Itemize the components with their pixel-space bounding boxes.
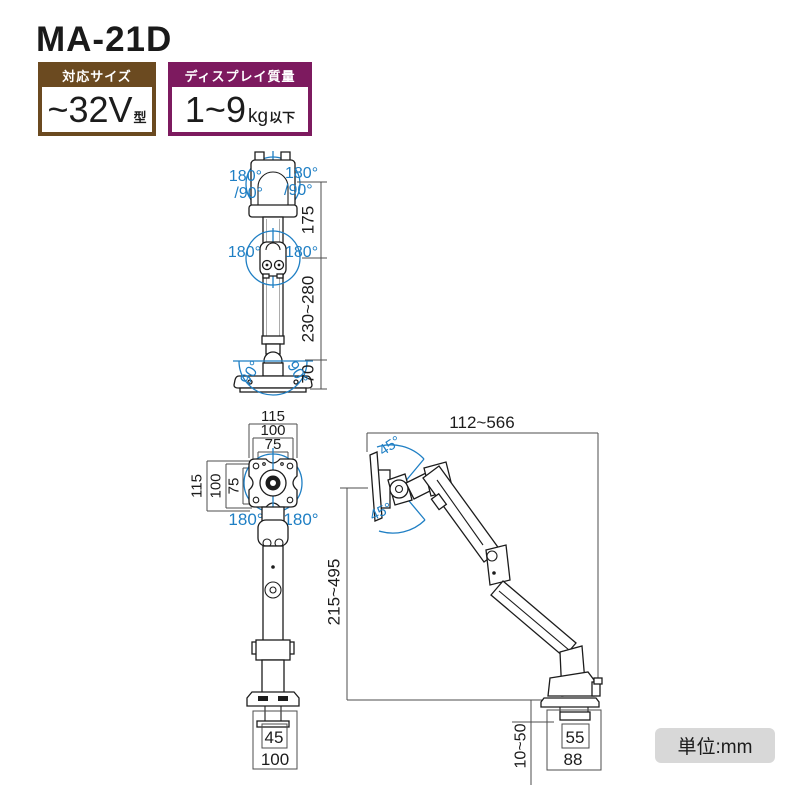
dim-base-outer: 100 — [261, 750, 289, 769]
dim-clamp-inner: 55 — [566, 728, 585, 747]
vesa-height-mid: 100 — [208, 473, 225, 498]
dim-desk-thickness: 10~50 — [513, 723, 530, 768]
vesa-view-base-dimensions: 45 100 — [253, 711, 297, 769]
vesa-height-inner: 75 — [226, 478, 243, 495]
swivel-mid-right-label: 180° — [285, 244, 318, 261]
dim-reach: 112~566 — [449, 413, 514, 432]
dim-height-range: 215~495 — [325, 559, 344, 626]
swivel-top-left-sub-label: /90° — [234, 185, 263, 202]
dim-base-inner: 45 — [265, 728, 284, 747]
swivel-top-right-label: 180° — [285, 165, 318, 182]
tilt-down-label: 45° — [367, 500, 395, 525]
vesa-rotation-right-label: 180° — [283, 510, 318, 529]
swivel-top-right-sub-label: /90° — [284, 182, 313, 199]
side-view-drawing — [370, 445, 602, 720]
front-view-dimensions: 175 230~280 70 — [297, 182, 327, 389]
vesa-height-outer: 115 — [189, 474, 206, 498]
dimension-drawing: 175 230~280 70 180° /90° 180° /90° 180° … — [0, 0, 800, 800]
dim-clamp-outer: 88 — [564, 750, 583, 769]
swivel-mid-left-label: 180° — [228, 244, 261, 261]
vesa-view-dimensions-left: 115 100 75 — [189, 461, 256, 511]
side-view-dimensions: 112~566 215~495 — [325, 413, 599, 700]
product-spec-diagram: MA-21D 対応サイズ ~32V型 ディスプレイ質量 1~9kg以下 — [0, 0, 800, 800]
dim-head-height: 175 — [299, 206, 318, 234]
dim-pole-height: 230~280 — [299, 276, 318, 343]
swivel-top-left-label: 180° — [229, 168, 262, 185]
unit-note: 単位:mm — [655, 728, 775, 763]
tilt-up-label: 45° — [376, 433, 404, 460]
